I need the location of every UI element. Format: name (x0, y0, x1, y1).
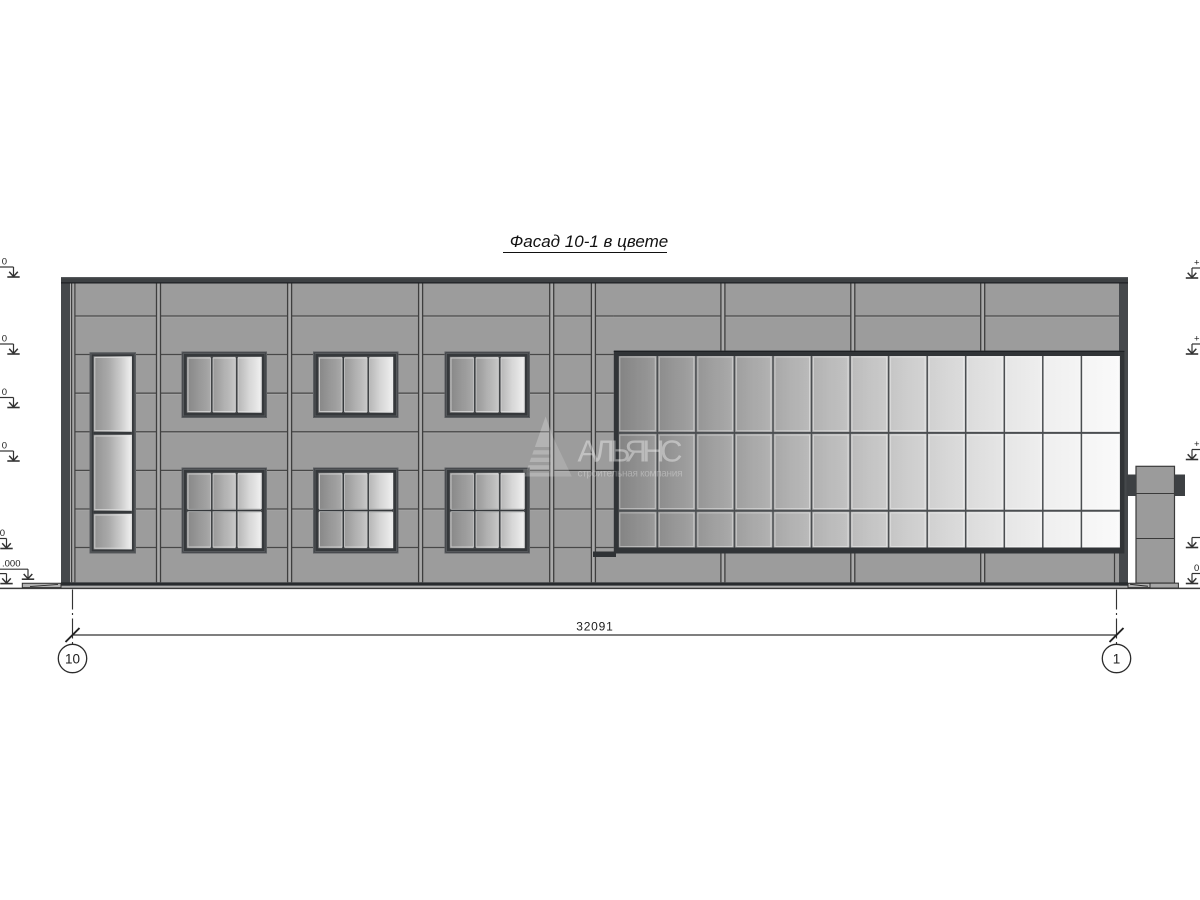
svg-text:0: 0 (2, 334, 7, 345)
svg-text:строительная компания: строительная компания (578, 469, 683, 480)
svg-text:+: + (1194, 439, 1200, 450)
svg-text:0: 0 (0, 528, 5, 539)
svg-text:Фасад 10-1 в цвете: Фасад 10-1 в цвете (510, 232, 669, 251)
svg-text:0: 0 (2, 387, 7, 398)
svg-text:10: 10 (65, 652, 80, 667)
svg-text:АЛЬЯНС: АЛЬЯНС (578, 434, 683, 469)
svg-text:1: 1 (1113, 652, 1121, 667)
svg-text:.000: .000 (2, 559, 21, 570)
svg-text:0: 0 (2, 441, 7, 452)
svg-text:32091: 32091 (576, 620, 613, 634)
svg-text:0: 0 (2, 257, 7, 268)
svg-text:+: + (1194, 334, 1200, 345)
svg-text:+: + (1194, 258, 1200, 269)
svg-text:0: 0 (1194, 563, 1199, 574)
